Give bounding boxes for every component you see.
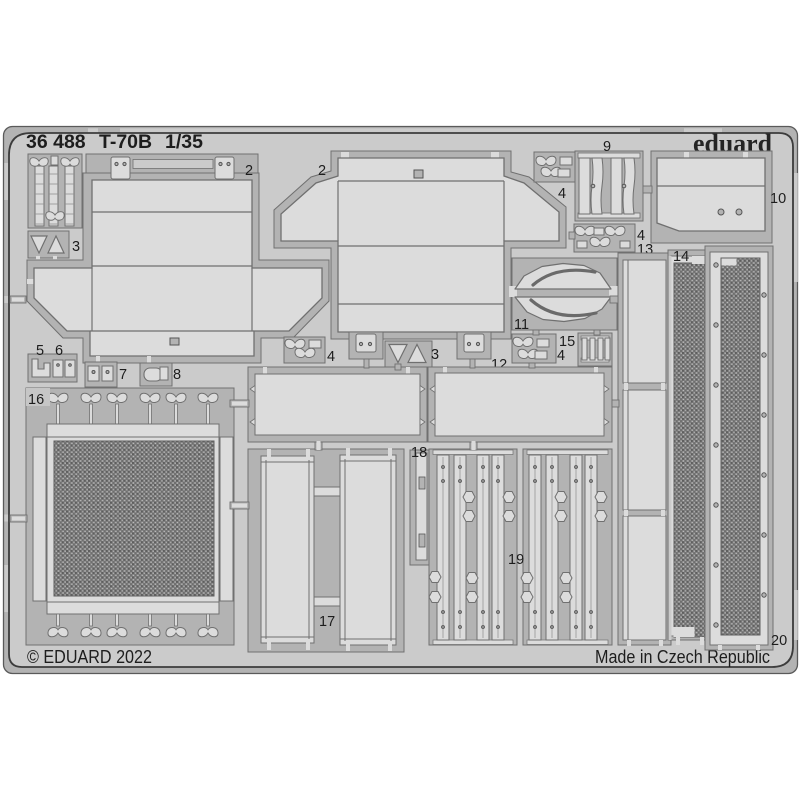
svg-text:T-70B: T-70B [99,131,152,153]
svg-text:15: 15 [559,334,575,350]
svg-text:11: 11 [514,317,529,333]
svg-text:4: 4 [557,348,565,364]
svg-text:3: 3 [72,239,80,255]
svg-text:2: 2 [245,163,253,179]
svg-text:7: 7 [119,367,127,383]
svg-text:2: 2 [318,163,326,179]
svg-text:4: 4 [327,349,335,365]
svg-text:4: 4 [558,186,566,202]
svg-text:10: 10 [770,191,786,207]
svg-text:© EDUARD 2022: © EDUARD 2022 [27,647,152,667]
svg-text:20: 20 [771,633,787,649]
svg-text:6: 6 [55,343,63,359]
svg-text:8: 8 [173,367,181,383]
svg-text:18: 18 [411,445,427,461]
svg-text:17: 17 [319,614,335,630]
svg-text:9: 9 [603,139,611,155]
svg-text:3: 3 [431,347,439,363]
svg-text:36 488: 36 488 [26,131,86,153]
svg-text:19: 19 [508,552,524,568]
svg-text:5: 5 [36,343,44,359]
svg-text:16: 16 [28,392,44,408]
svg-text:1/35: 1/35 [165,131,203,153]
svg-text:14: 14 [673,249,689,265]
